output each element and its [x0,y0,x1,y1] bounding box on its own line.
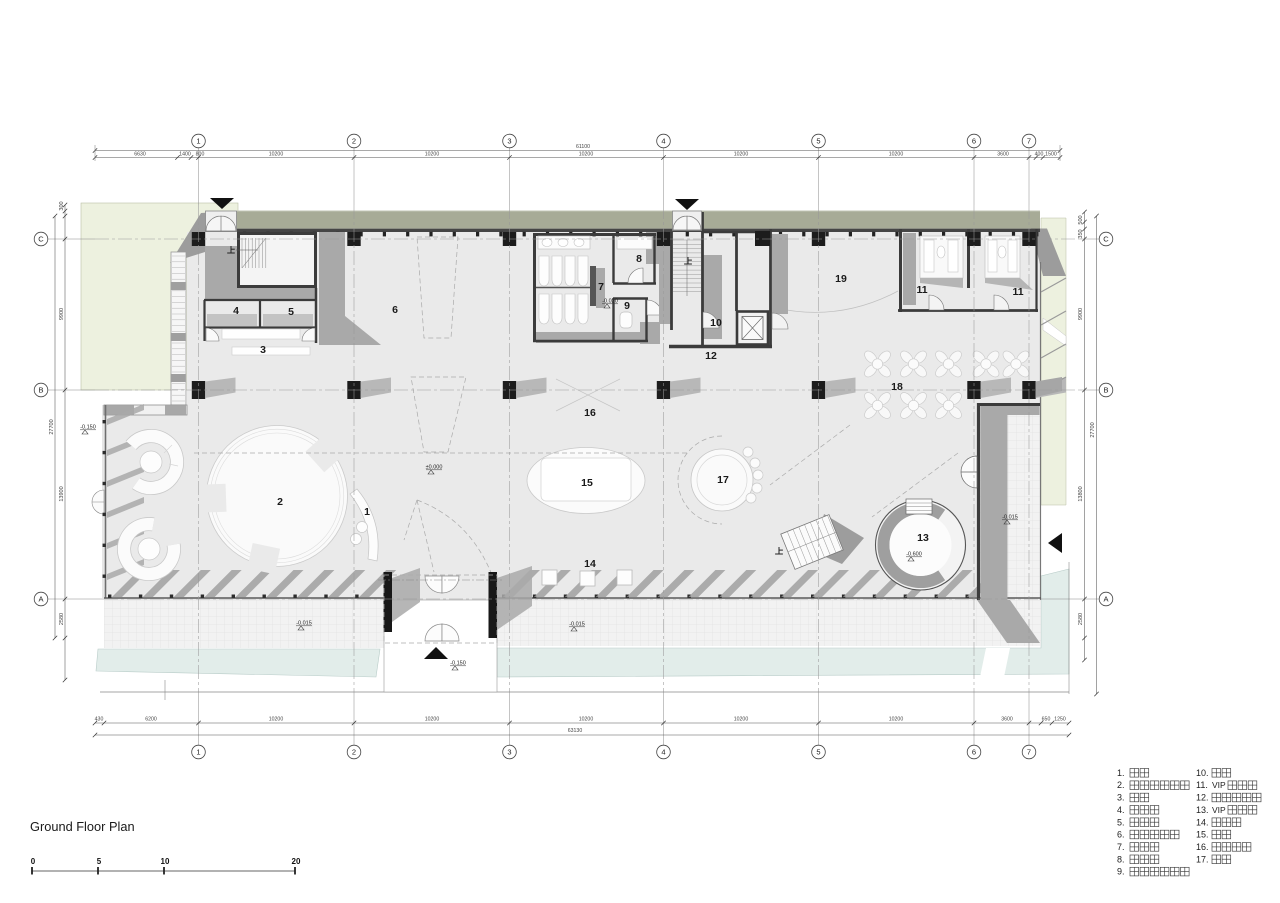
svg-text:16.: 16. [1196,842,1209,852]
svg-text:4: 4 [233,305,239,317]
svg-text:-0.020: -0.020 [602,298,618,304]
svg-text:3.: 3. [1117,793,1125,803]
svg-text:3600: 3600 [1001,717,1013,723]
svg-text:6: 6 [972,748,976,757]
svg-text:2580: 2580 [59,613,65,625]
svg-text:4.: 4. [1117,805,1125,815]
svg-text:800: 800 [196,151,205,157]
svg-text:10200: 10200 [269,717,284,723]
svg-text:10.: 10. [1196,768,1209,778]
svg-text:10200: 10200 [425,151,440,157]
svg-text:9: 9 [624,300,630,312]
svg-text:6: 6 [972,137,976,146]
svg-text:3: 3 [507,748,511,757]
svg-text:11: 11 [1012,286,1023,298]
svg-text:10: 10 [710,317,722,329]
svg-text:8: 8 [636,253,642,265]
svg-text:Ground Floor Plan: Ground Floor Plan [30,819,135,834]
svg-text:13.: 13. [1196,805,1209,815]
svg-text:12.: 12. [1196,793,1209,803]
svg-text:3600: 3600 [997,151,1009,157]
svg-text:1: 1 [196,137,200,146]
svg-text:1250: 1250 [1054,717,1066,723]
svg-text:500: 500 [1078,215,1084,224]
svg-text:-0.015: -0.015 [1002,514,1018,520]
svg-text:-0.600: -0.600 [906,551,922,557]
svg-text:19: 19 [835,273,847,285]
svg-text:2580: 2580 [1078,613,1084,625]
svg-text:13800: 13800 [1078,486,1084,501]
svg-text:±0.000: ±0.000 [426,464,443,470]
svg-text:2: 2 [352,137,356,146]
svg-text:300: 300 [59,201,65,210]
svg-text:16: 16 [584,407,596,419]
svg-text:1400: 1400 [179,151,191,157]
svg-text:61100: 61100 [576,144,590,150]
svg-text:27700: 27700 [1090,422,1096,437]
svg-text:4: 4 [661,137,665,146]
svg-text:5: 5 [816,748,820,757]
svg-text:10200: 10200 [269,151,284,157]
svg-text:4: 4 [661,748,665,757]
svg-text:7.: 7. [1117,842,1125,852]
svg-text:7: 7 [598,281,604,293]
svg-text:9900: 9900 [1078,308,1084,320]
svg-text:B: B [38,386,43,395]
svg-text:10200: 10200 [889,717,904,723]
svg-text:B: B [1103,386,1108,395]
svg-text:-0.150: -0.150 [80,424,96,430]
svg-text:6630: 6630 [134,151,146,157]
svg-text:A: A [1103,595,1108,604]
svg-text:1.: 1. [1117,768,1125,778]
svg-text:6200: 6200 [145,717,157,723]
svg-text:13: 13 [917,532,929,544]
svg-text:10200: 10200 [579,151,594,157]
svg-text:-0.015: -0.015 [569,621,585,627]
svg-text:11.: 11. [1196,780,1208,790]
svg-text:13900: 13900 [59,486,65,501]
svg-text:5: 5 [97,857,102,866]
svg-text:3: 3 [507,137,511,146]
svg-text:350: 350 [1078,229,1084,238]
svg-text:1500: 1500 [1045,151,1057,157]
svg-text:2.: 2. [1117,780,1125,790]
svg-text:10: 10 [161,857,170,866]
svg-text:10200: 10200 [425,717,440,723]
svg-text:12: 12 [705,350,717,362]
svg-text:15.: 15. [1196,830,1209,840]
svg-text:650: 650 [1042,717,1051,723]
svg-text:8.: 8. [1117,854,1125,864]
svg-text:9.: 9. [1117,867,1125,877]
svg-text:27700: 27700 [49,419,55,434]
svg-text:7: 7 [1027,137,1031,146]
svg-text:-0.150: -0.150 [450,660,466,666]
svg-text:10200: 10200 [579,717,594,723]
svg-text:63130: 63130 [568,728,583,734]
svg-text:10200: 10200 [734,717,749,723]
svg-text:10200: 10200 [889,151,904,157]
svg-text:7: 7 [1027,748,1031,757]
svg-text:5.: 5. [1117,817,1125,827]
svg-text:9900: 9900 [59,308,65,320]
svg-text:C: C [1103,235,1109,244]
svg-text:400: 400 [1035,151,1044,157]
svg-text:VIP: VIP [1212,780,1226,790]
svg-text:5: 5 [288,306,294,318]
svg-text:17: 17 [717,474,729,486]
svg-text:14.: 14. [1196,817,1209,827]
svg-text:15: 15 [581,477,593,489]
svg-text:2: 2 [277,496,283,508]
svg-text:3: 3 [260,344,266,356]
svg-text:430: 430 [95,717,104,723]
svg-text:20: 20 [292,857,301,866]
svg-text:0: 0 [31,857,36,866]
svg-text:6: 6 [392,304,398,316]
svg-text:A: A [38,595,43,604]
svg-text:2: 2 [352,748,356,757]
svg-text:-0.015: -0.015 [296,620,312,626]
svg-text:1: 1 [196,748,200,757]
svg-text:14: 14 [584,558,596,570]
svg-text:17.: 17. [1196,854,1209,864]
svg-text:5: 5 [816,137,820,146]
svg-text:C: C [38,235,44,244]
svg-text:1: 1 [364,506,370,518]
svg-text:10200: 10200 [734,151,749,157]
svg-text:VIP: VIP [1212,805,1226,815]
svg-text:11: 11 [916,284,927,296]
svg-text:6.: 6. [1117,830,1125,840]
svg-text:18: 18 [891,381,903,393]
